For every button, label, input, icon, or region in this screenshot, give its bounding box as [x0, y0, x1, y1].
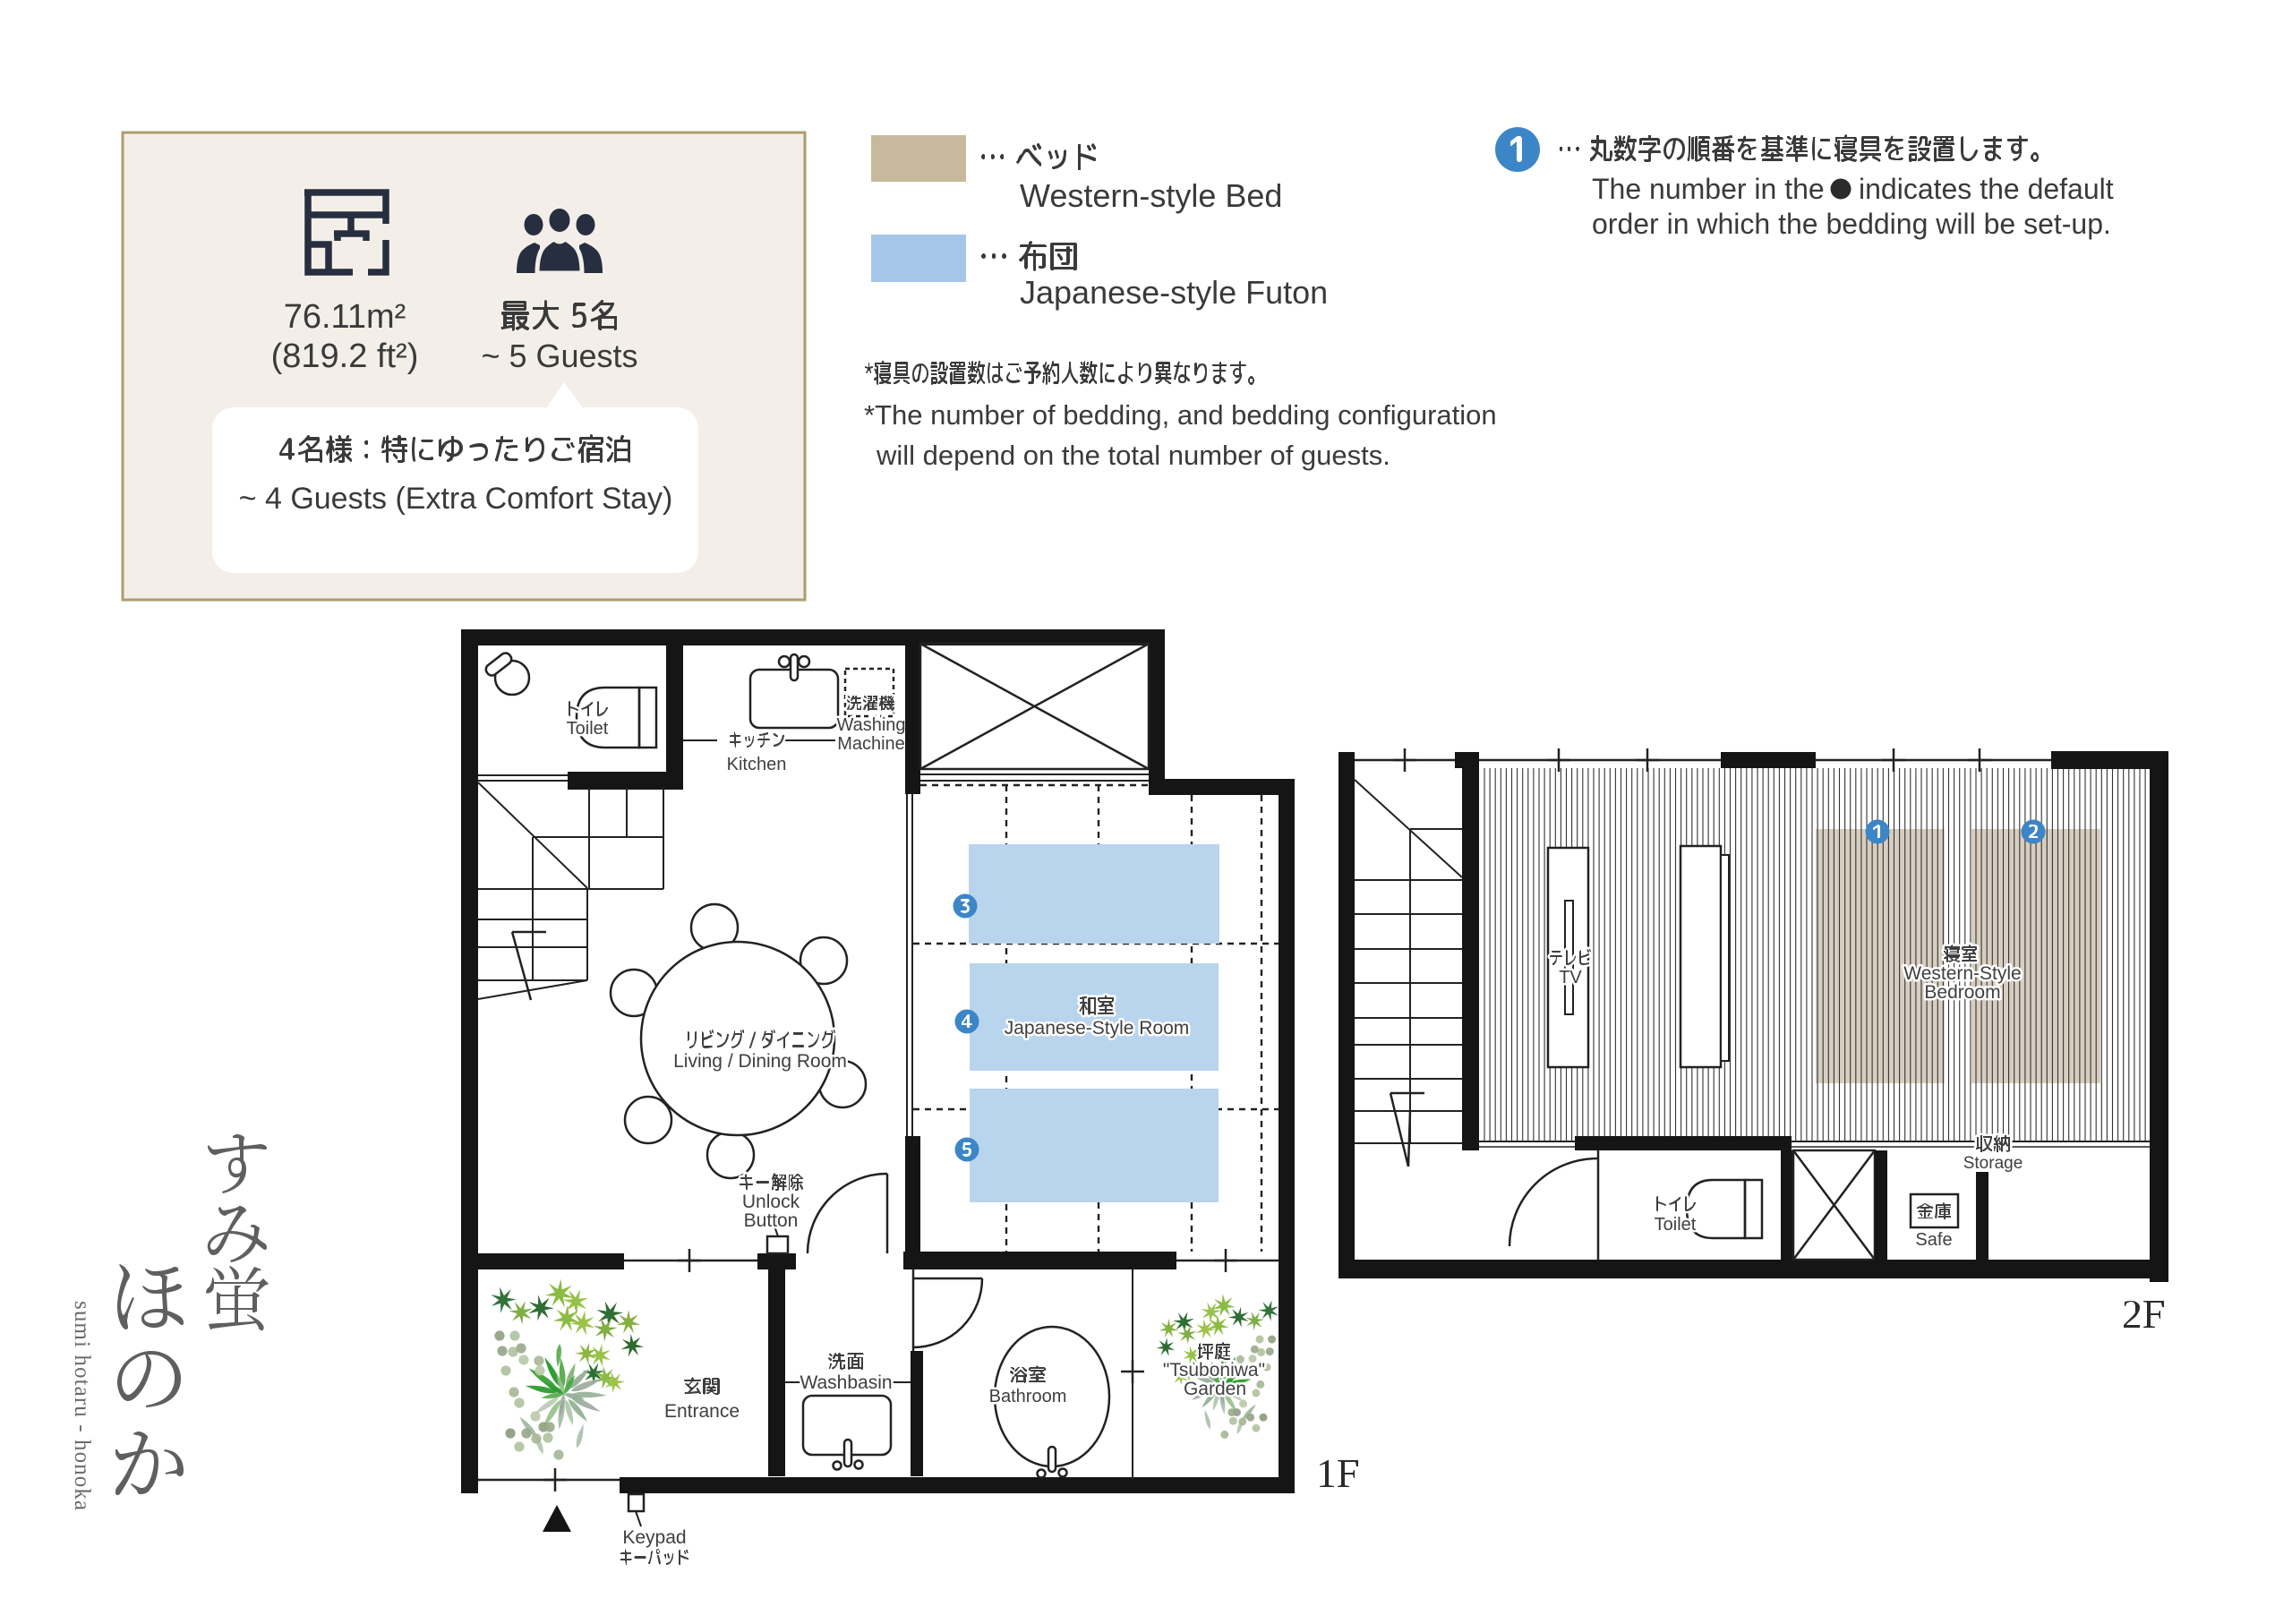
svg-text:TV: TV — [1559, 968, 1582, 987]
svg-text:Keypad: Keypad — [622, 1527, 686, 1548]
svg-text:Button: Button — [744, 1210, 799, 1231]
svg-text:Toilet: Toilet — [1655, 1215, 1697, 1235]
svg-text:indicates the default: indicates the default — [1859, 173, 2114, 205]
svg-text:~ 5 Guests: ~ 5 Guests — [481, 338, 637, 374]
svg-text:Storage: Storage — [1963, 1154, 2023, 1173]
svg-text:sumi hotaru - honoka: sumi hotaru - honoka — [70, 1301, 94, 1511]
svg-text:The number in the: The number in the — [1592, 173, 1825, 205]
svg-text:Safe: Safe — [1915, 1230, 1952, 1250]
svg-text:Kitchen: Kitchen — [727, 755, 787, 774]
svg-text:Japanese-Style Room: Japanese-Style Room — [1005, 1018, 1190, 1039]
svg-text:Entrance: Entrance — [664, 1401, 740, 1422]
svg-text:Unlock: Unlock — [742, 1192, 800, 1212]
svg-text:Bedroom: Bedroom — [1924, 982, 2000, 1003]
svg-text:76.11m²: 76.11m² — [284, 298, 406, 336]
svg-text:Bathroom: Bathroom — [989, 1387, 1067, 1406]
svg-text:Machine: Machine — [837, 734, 905, 754]
svg-text:Washbasin: Washbasin — [800, 1372, 892, 1393]
svg-text:Garden: Garden — [1184, 1379, 1246, 1399]
svg-text:(819.2 ft²): (819.2 ft²) — [271, 338, 419, 375]
svg-text:order in which the bedding wil: order in which the bedding will be set-u… — [1592, 208, 2111, 240]
svg-text:Western-style Bed: Western-style Bed — [1020, 177, 1282, 214]
svg-text:Japanese-style Futon: Japanese-style Futon — [1020, 274, 1328, 311]
svg-text:Toilet: Toilet — [567, 719, 609, 739]
svg-text:"Tsuboniwa": "Tsuboniwa" — [1163, 1360, 1265, 1380]
svg-text:~ 4 Guests (Extra Comfort Stay: ~ 4 Guests (Extra Comfort Stay) — [239, 482, 673, 516]
svg-text:Washing: Washing — [836, 715, 905, 735]
svg-text:Living / Dining Room: Living / Dining Room — [673, 1051, 847, 1072]
svg-text:Western-Style: Western-Style — [1903, 963, 2022, 984]
svg-text:*The number of bedding, and be: *The number of bedding, and bedding conf… — [864, 399, 1497, 431]
svg-text:will depend on the total numbe: will depend on the total number of guest… — [876, 440, 1390, 471]
